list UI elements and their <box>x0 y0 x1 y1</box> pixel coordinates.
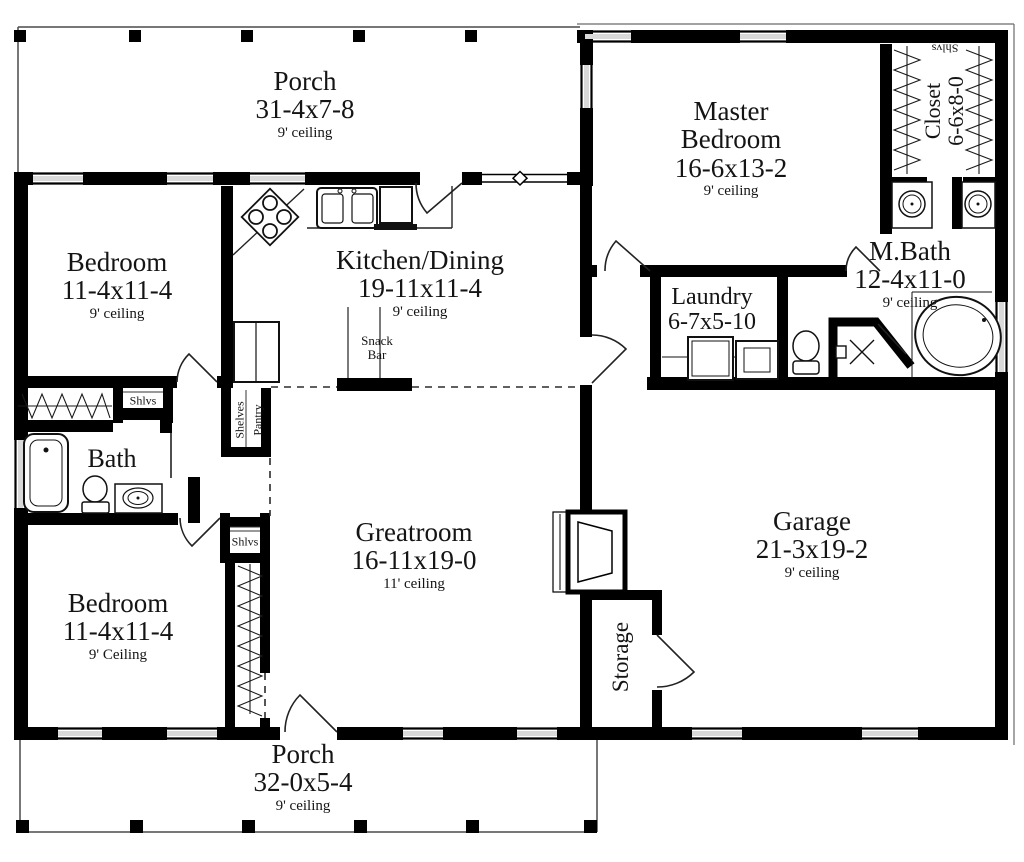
snack-bar-label: Snack Bar <box>361 334 393 363</box>
room-ceiling: 9' ceiling <box>854 294 965 313</box>
fireplace <box>553 512 625 592</box>
mbath-toilet-icon <box>793 331 819 374</box>
kitchen-sink-icon <box>317 188 377 228</box>
room-name: Storage <box>608 622 634 692</box>
room-name: Porch <box>254 740 353 768</box>
room-dims: 11-4x11-4 <box>63 617 173 645</box>
room-label-bedroom-upper: Bedroom 11-4x11-4 9' ceiling <box>62 248 172 323</box>
mbath-vanity-left <box>892 182 932 228</box>
room-ceiling: 9' ceiling <box>336 303 504 322</box>
room-dims: 6-6x8-0 <box>944 76 967 146</box>
stove-icon <box>242 189 299 246</box>
room-label-garage: Garage 21-3x19-2 9' ceiling <box>756 507 868 582</box>
room-label-storage: Storage <box>608 622 634 692</box>
pantry-label: Pantry <box>251 404 266 435</box>
room-ceiling: 9' ceiling <box>646 182 816 201</box>
room-ceiling: 9' ceiling <box>756 564 868 583</box>
shower-icon <box>836 340 874 364</box>
room-label-porch-top: Porch 31-4x7-8 9' ceiling <box>256 67 355 142</box>
room-label-mbath: M.Bath 12-4x11-0 9' ceiling <box>854 237 965 312</box>
room-dims: 16-6x13-2 <box>646 154 816 182</box>
door-hall-garage <box>592 335 626 383</box>
room-name: Bedroom <box>63 589 173 617</box>
range-icon <box>374 187 417 230</box>
shlvs-label-hall-closet: Shlvs <box>232 535 259 550</box>
room-dims: 12-4x11-0 <box>854 265 965 293</box>
room-label-closet-master: Closet 6-6x8-0 <box>921 76 967 146</box>
washer-dryer-icons <box>662 337 778 380</box>
room-name: M.Bath <box>854 237 965 265</box>
room-label-bedroom-lower: Bedroom 11-4x11-4 9' Ceiling <box>63 589 173 664</box>
room-label-greatroom: Greatroom 16-11x19-0 11' ceiling <box>352 518 477 593</box>
room-name: Laundry <box>668 285 756 310</box>
shlvs-label-bath-closet: Shlvs <box>130 394 157 409</box>
room-ceiling: 11' ceiling <box>352 575 477 594</box>
room-name: Bath <box>87 444 136 474</box>
room-name: Kitchen/Dining <box>336 246 504 274</box>
room-dims: 11-4x11-4 <box>62 276 172 304</box>
room-dims: 16-11x19-0 <box>352 546 477 574</box>
room-dims: 21-3x19-2 <box>756 535 868 563</box>
room-label-laundry: Laundry 6-7x5-10 <box>668 285 756 335</box>
floor-plan: Porch 31-4x7-8 9' ceiling Bedroom 11-4x1… <box>0 0 1024 862</box>
mbath-vanity-right <box>962 182 995 228</box>
door-storage-garage <box>657 635 694 687</box>
shlvs-label-master-closet: Shlvs <box>932 41 959 56</box>
room-name: Closet <box>921 76 944 146</box>
refrigerator-icon <box>234 322 279 382</box>
room-name: Porch <box>256 67 355 95</box>
transom-window <box>482 172 567 186</box>
room-ceiling: 9' ceiling <box>256 124 355 143</box>
porch-bottom-posts <box>16 820 597 833</box>
room-name: Master Bedroom <box>656 97 806 154</box>
room-ceiling: 9' ceiling <box>254 797 353 816</box>
door-greatroom-porch <box>285 695 337 732</box>
room-ceiling: 9' Ceiling <box>63 646 173 665</box>
bath-tub-icon <box>24 434 68 512</box>
room-dims: 19-11x11-4 <box>336 274 504 302</box>
door-shower-leaf <box>878 324 906 354</box>
room-label-master-bedroom: Master Bedroom 16-6x13-2 9' ceiling <box>646 97 816 201</box>
bath-vanity-icon <box>115 484 162 513</box>
room-label-porch-bottom: Porch 32-0x5-4 9' ceiling <box>254 740 353 815</box>
floor-plan-drawing <box>0 0 1024 862</box>
room-name: Greatroom <box>352 518 477 546</box>
bath-toilet-icon <box>82 476 109 513</box>
room-dims: 31-4x7-8 <box>256 95 355 123</box>
porch-top-posts <box>14 30 477 42</box>
door-bedroom-upper <box>177 354 217 382</box>
room-dims: 32-0x5-4 <box>254 768 353 796</box>
room-label-kitchen: Kitchen/Dining 19-11x11-4 9' ceiling <box>336 246 504 321</box>
room-label-bath: Bath <box>87 444 136 474</box>
room-name: Bedroom <box>62 248 172 276</box>
room-name: Garage <box>756 507 868 535</box>
door-kitchen-porch <box>416 183 462 213</box>
room-ceiling: 9' ceiling <box>62 305 172 324</box>
room-dims: 6-7x5-10 <box>668 310 756 335</box>
shelves-label: Shelves <box>233 401 248 438</box>
